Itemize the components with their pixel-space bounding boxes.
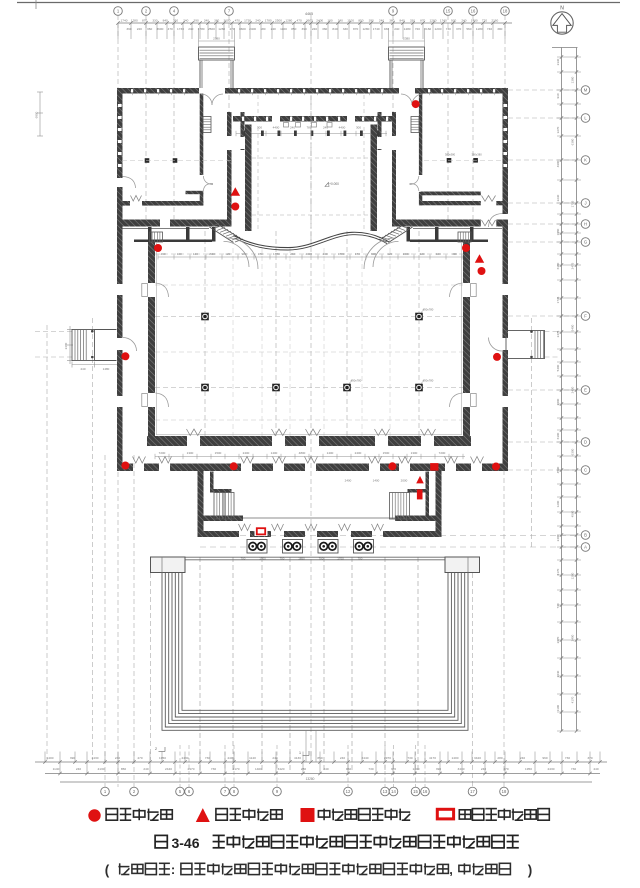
svg-text:730: 730 (571, 767, 576, 771)
svg-text:1740: 1740 (440, 18, 447, 22)
svg-text:240: 240 (323, 126, 328, 130)
svg-text:2970: 2970 (384, 756, 391, 760)
svg-text:2160: 2160 (491, 18, 498, 22)
svg-text:470: 470 (503, 767, 508, 771)
svg-text:1400: 1400 (271, 451, 278, 455)
svg-text:2380: 2380 (213, 36, 220, 40)
svg-text:15: 15 (413, 789, 418, 794)
svg-text:3430: 3430 (92, 756, 99, 760)
svg-text:240: 240 (188, 27, 193, 31)
svg-text:930: 930 (451, 18, 456, 22)
svg-text:1300: 1300 (187, 451, 194, 455)
svg-text:H: H (584, 222, 587, 227)
svg-text:370: 370 (587, 756, 592, 760)
svg-text:2400: 2400 (243, 451, 250, 455)
svg-text:470: 470 (229, 27, 234, 31)
svg-text:170: 170 (355, 252, 360, 256)
svg-text:1300: 1300 (411, 451, 418, 455)
svg-text:1140: 1140 (53, 767, 60, 771)
svg-text:390: 390 (497, 27, 502, 31)
svg-text:5400: 5400 (556, 364, 560, 371)
svg-text:850: 850 (291, 27, 296, 31)
svg-text:1950: 1950 (159, 756, 166, 760)
svg-text:240: 240 (290, 252, 295, 256)
svg-text:6380: 6380 (571, 138, 575, 145)
svg-text:240: 240 (76, 767, 81, 771)
svg-text:4900: 4900 (556, 160, 560, 167)
svg-text:870: 870 (353, 27, 358, 31)
svg-text:J: J (584, 201, 586, 206)
svg-text:1780: 1780 (273, 252, 280, 256)
svg-text:240: 240 (137, 27, 142, 31)
svg-text:3420: 3420 (474, 756, 481, 760)
svg-text:470: 470 (137, 756, 142, 760)
svg-text:960: 960 (542, 756, 547, 760)
svg-text:730: 730 (368, 767, 373, 771)
svg-text:16: 16 (471, 9, 476, 14)
svg-text:930: 930 (556, 93, 560, 98)
svg-text:4170: 4170 (556, 568, 560, 575)
svg-text:390: 390 (369, 18, 374, 22)
svg-text:1380: 1380 (556, 228, 560, 235)
svg-text:2000: 2000 (401, 479, 408, 483)
svg-text:1730: 1730 (244, 18, 251, 22)
svg-text:180: 180 (327, 18, 332, 22)
svg-text:2475: 2475 (556, 330, 560, 337)
svg-text:2400: 2400 (571, 386, 575, 393)
svg-text:240: 240 (340, 756, 345, 760)
svg-text:2440: 2440 (556, 670, 560, 677)
svg-text:870: 870 (142, 18, 147, 22)
svg-text:240: 240 (481, 767, 486, 771)
svg-text:240: 240 (379, 18, 384, 22)
svg-text:240: 240 (255, 18, 260, 22)
svg-text:2970: 2970 (556, 636, 560, 643)
svg-text:1950: 1950 (525, 767, 532, 771)
svg-text:730: 730 (205, 756, 210, 760)
svg-text:4400: 4400 (339, 126, 346, 130)
svg-text:1630: 1630 (403, 252, 410, 256)
svg-text:2160: 2160 (424, 27, 431, 31)
svg-text:1140: 1140 (249, 756, 256, 760)
svg-text:6380: 6380 (556, 262, 560, 269)
svg-text:2430: 2430 (182, 756, 189, 760)
svg-text:M: M (584, 88, 588, 93)
svg-text:3-46: 3-46 (171, 835, 199, 851)
svg-text:1400: 1400 (255, 767, 262, 771)
svg-text:100: 100 (436, 252, 441, 256)
svg-text:1400: 1400 (373, 479, 380, 483)
svg-text:360: 360 (173, 18, 178, 22)
svg-text:3600: 3600 (239, 27, 246, 31)
svg-text:3430: 3430 (458, 767, 465, 771)
svg-text:840: 840 (163, 18, 168, 22)
svg-text:240: 240 (394, 27, 399, 31)
svg-text:K: K (584, 158, 587, 163)
svg-text:1400: 1400 (327, 451, 334, 455)
svg-text:2: 2 (155, 747, 157, 751)
svg-text:(: ( (105, 863, 110, 878)
svg-text:240: 240 (323, 767, 328, 771)
svg-text:1480: 1480 (103, 367, 110, 371)
svg-text:2400: 2400 (556, 534, 560, 541)
svg-text:2440: 2440 (165, 767, 172, 771)
svg-text:1100: 1100 (556, 704, 560, 711)
svg-text:840: 840 (332, 27, 337, 31)
svg-text:300: 300 (356, 126, 361, 130)
svg-text:2500: 2500 (208, 27, 215, 31)
svg-text:12: 12 (346, 789, 351, 794)
svg-text:1500: 1500 (215, 451, 222, 455)
svg-text:850: 850 (121, 767, 126, 771)
svg-text:850: 850 (317, 756, 322, 760)
svg-text:2400: 2400 (64, 342, 68, 349)
svg-text:2440: 2440 (362, 756, 369, 760)
svg-text:1400: 1400 (47, 756, 54, 760)
svg-text:1400: 1400 (452, 756, 459, 760)
svg-text:2400: 2400 (249, 27, 256, 31)
svg-text:6800: 6800 (35, 111, 39, 118)
svg-text:1200: 1200 (571, 572, 575, 579)
svg-text:180: 180 (260, 27, 265, 31)
svg-text:850: 850 (358, 18, 363, 22)
svg-text:330: 330 (410, 18, 415, 22)
svg-text:1280: 1280 (362, 27, 369, 31)
svg-text:14: 14 (391, 789, 396, 794)
svg-text:C: C (584, 468, 587, 473)
svg-text:3600: 3600 (156, 27, 163, 31)
svg-text:1200: 1200 (435, 27, 442, 31)
svg-text:240: 240 (143, 767, 148, 771)
svg-text:440: 440 (227, 756, 232, 760)
svg-text:2230: 2230 (556, 194, 560, 201)
svg-text:240: 240 (312, 27, 317, 31)
svg-text:1280: 1280 (285, 18, 292, 22)
svg-text:720: 720 (415, 27, 420, 31)
svg-text:6300: 6300 (556, 432, 560, 439)
svg-text:2500: 2500 (275, 18, 282, 22)
svg-text:E: E (584, 388, 587, 393)
svg-text:370: 370 (456, 27, 461, 31)
svg-text:240: 240 (271, 27, 276, 31)
svg-text:730: 730 (565, 756, 570, 760)
svg-text:120: 120 (420, 252, 425, 256)
svg-text:3270: 3270 (556, 126, 560, 133)
svg-text:870: 870 (420, 18, 425, 22)
svg-text:240: 240 (80, 367, 85, 371)
svg-text:): ) (528, 863, 533, 878)
svg-text:2400: 2400 (556, 398, 560, 405)
svg-text:1735: 1735 (571, 200, 575, 207)
svg-text:240: 240 (272, 756, 277, 760)
svg-text:240: 240 (204, 18, 209, 22)
svg-text:120: 120 (225, 252, 230, 256)
svg-text:840: 840 (400, 18, 405, 22)
svg-text:380x380: 380x380 (471, 153, 482, 157)
svg-text:1735: 1735 (556, 296, 560, 303)
svg-text:390: 390 (302, 27, 307, 31)
svg-text:280: 280 (301, 767, 306, 771)
svg-text:1740: 1740 (373, 27, 380, 31)
svg-text:170: 170 (258, 252, 263, 256)
svg-text:380x380: 380x380 (445, 153, 456, 157)
svg-text:1100: 1100 (280, 27, 287, 31)
svg-text:470: 470 (235, 18, 240, 22)
svg-text:2380: 2380 (403, 36, 410, 40)
svg-text:120: 120 (193, 252, 198, 256)
svg-text:2400: 2400 (345, 479, 352, 483)
svg-text:7200: 7200 (439, 451, 446, 455)
svg-text:1780: 1780 (265, 18, 272, 22)
svg-text:240: 240 (115, 756, 120, 760)
svg-text:4130: 4130 (98, 767, 105, 771)
svg-text:,: , (449, 862, 453, 877)
svg-text:1: 1 (299, 751, 301, 755)
svg-text:4590: 4590 (556, 466, 560, 473)
svg-text::: : (171, 862, 175, 877)
svg-text:D: D (584, 440, 587, 445)
svg-text:1280: 1280 (430, 18, 437, 22)
svg-text:4400: 4400 (305, 252, 312, 256)
svg-text:4800: 4800 (299, 451, 306, 455)
svg-text:240: 240 (290, 126, 295, 130)
svg-text:720: 720 (482, 18, 487, 22)
svg-text:2400: 2400 (571, 634, 575, 641)
svg-text:2430: 2430 (548, 767, 555, 771)
svg-text:490: 490 (452, 252, 457, 256)
svg-text:1480: 1480 (404, 27, 411, 31)
svg-text:1280: 1280 (218, 27, 225, 31)
svg-text:1400: 1400 (413, 767, 420, 771)
svg-text:1100: 1100 (347, 18, 354, 22)
svg-text:6300: 6300 (571, 448, 575, 455)
svg-text:3600: 3600 (306, 18, 313, 22)
svg-text:330: 330 (152, 18, 157, 22)
svg-text:4170: 4170 (233, 767, 240, 771)
svg-text:F: F (584, 314, 587, 319)
svg-text:960: 960 (346, 767, 351, 771)
svg-text:1780: 1780 (338, 252, 345, 256)
svg-text:2475: 2475 (571, 262, 575, 269)
svg-text:730: 730 (556, 603, 560, 608)
svg-text:730: 730 (407, 756, 412, 760)
svg-text:370: 370 (391, 767, 396, 771)
svg-text:440: 440 (593, 767, 598, 771)
svg-text:1480: 1480 (471, 18, 478, 22)
svg-text:15: 15 (446, 9, 451, 14)
svg-text:18: 18 (502, 789, 507, 794)
svg-text:120: 120 (387, 252, 392, 256)
svg-text:4170: 4170 (429, 756, 436, 760)
svg-text:B: B (584, 533, 587, 538)
svg-text:730: 730 (211, 767, 216, 771)
svg-text:2400: 2400 (316, 18, 323, 22)
svg-text:390: 390 (194, 18, 199, 22)
svg-text:360: 360 (389, 18, 394, 22)
svg-text:730: 730 (446, 27, 451, 31)
svg-text:2400: 2400 (355, 451, 362, 455)
svg-text:280: 280 (497, 756, 502, 760)
svg-text:3600: 3600 (224, 18, 231, 22)
svg-text:360: 360 (214, 18, 219, 22)
svg-text:740: 740 (487, 27, 492, 31)
svg-text:16: 16 (423, 789, 428, 794)
svg-text:7200: 7200 (159, 451, 166, 455)
svg-text:330: 330 (343, 27, 348, 31)
svg-text:13: 13 (383, 789, 388, 794)
svg-text:1200: 1200 (556, 500, 560, 507)
svg-text:100: 100 (177, 252, 182, 256)
svg-text:470: 470 (168, 27, 173, 31)
svg-text:17: 17 (470, 789, 475, 794)
svg-text:240: 240 (183, 18, 188, 22)
svg-text:4130: 4130 (294, 756, 301, 760)
svg-text:18: 18 (503, 9, 508, 14)
svg-text:240: 240 (461, 18, 466, 22)
svg-text:360: 360 (147, 27, 152, 31)
svg-text:1280: 1280 (131, 18, 138, 22)
svg-text:240: 240 (322, 252, 327, 256)
svg-text:1730: 1730 (177, 27, 184, 31)
svg-text:390: 390 (126, 27, 131, 31)
svg-text:N: N (560, 6, 564, 12)
svg-text:1630: 1630 (208, 252, 215, 256)
svg-text:1180: 1180 (476, 27, 483, 31)
svg-text:4590: 4590 (571, 510, 575, 517)
svg-text:470: 470 (297, 18, 302, 22)
svg-text:A: A (584, 545, 587, 550)
svg-text:1380: 1380 (571, 76, 575, 83)
svg-text:4400: 4400 (273, 126, 280, 130)
svg-text:G: G (584, 240, 587, 245)
svg-text:13280: 13280 (306, 777, 315, 781)
svg-text:2330: 2330 (556, 58, 560, 65)
svg-text:2970: 2970 (188, 767, 195, 771)
svg-text:4465: 4465 (305, 12, 313, 16)
svg-text:390: 390 (436, 767, 441, 771)
svg-text:360: 360 (322, 27, 327, 31)
svg-text:560: 560 (466, 27, 471, 31)
svg-text:+0.000: +0.000 (329, 182, 339, 186)
svg-text:3420: 3420 (278, 767, 285, 771)
svg-text:240: 240 (520, 756, 525, 760)
svg-text:5400: 5400 (571, 324, 575, 331)
svg-text:390: 390 (70, 756, 75, 760)
svg-text:1500: 1500 (383, 451, 390, 455)
svg-text:1740: 1740 (121, 18, 128, 22)
svg-text:490: 490 (160, 252, 165, 256)
svg-text:4170: 4170 (571, 696, 575, 703)
svg-text:240: 240 (338, 18, 343, 22)
